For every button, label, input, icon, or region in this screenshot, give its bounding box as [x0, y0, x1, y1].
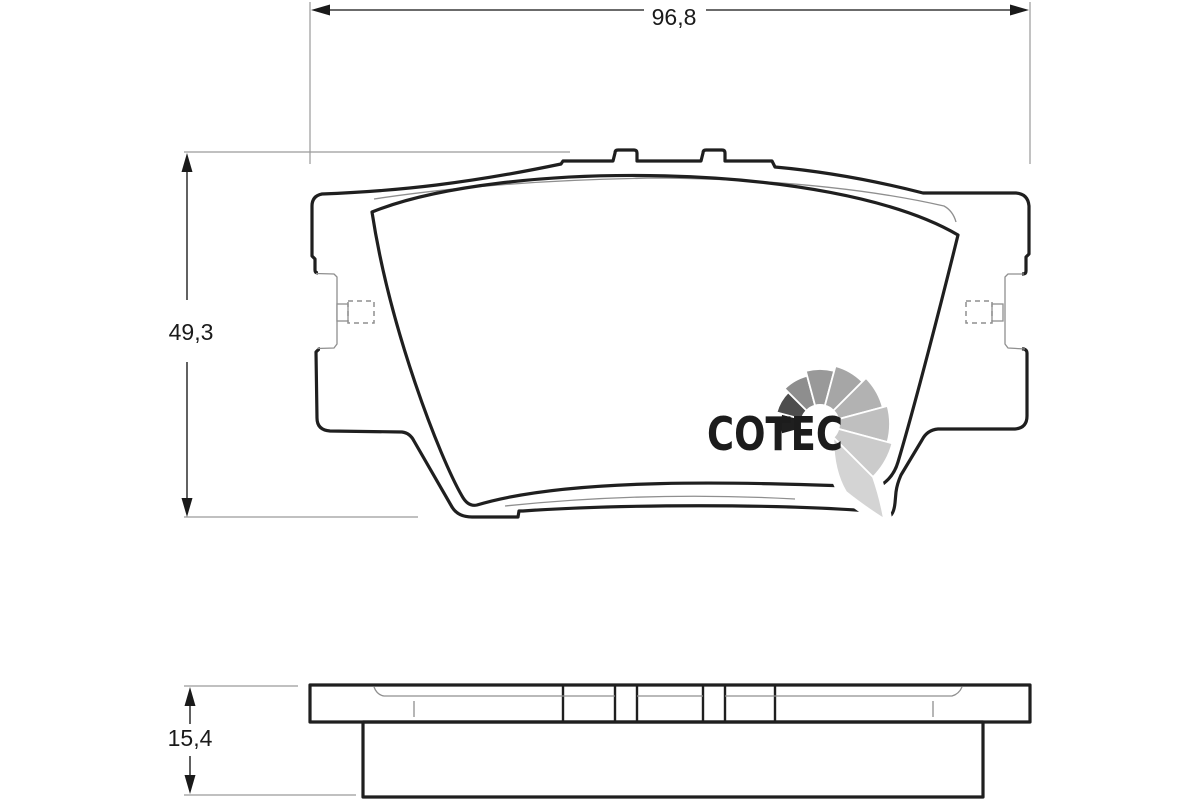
- arrow-left-icon: [311, 5, 330, 16]
- pad-top-view: [312, 150, 1029, 517]
- pad-side-view: [310, 685, 1030, 797]
- left-ear-tab: [337, 304, 348, 321]
- height-dimension-label: 49,3: [169, 319, 214, 345]
- friction-material-side-view: [363, 722, 983, 797]
- drawing-canvas: 96,8 49,3 COTEC: [0, 0, 1200, 800]
- arrow-down-icon: [185, 775, 196, 794]
- arrow-right-icon: [1010, 5, 1029, 16]
- width-dimension: 96,8: [310, 2, 1030, 164]
- left-recess-mask: [318, 274, 337, 348]
- arrow-up-icon: [182, 153, 193, 172]
- backing-plate-outline: [312, 150, 1029, 517]
- width-dimension-label: 96,8: [652, 4, 697, 30]
- right-ear-tab: [992, 304, 1003, 321]
- right-recess-mask: [1005, 274, 1022, 349]
- arrow-down-icon: [182, 498, 193, 517]
- left-recess-edge: [316, 274, 337, 349]
- arrow-up-icon: [185, 687, 196, 706]
- brake-pad-technical-drawing: 96,8 49,3 COTEC: [0, 0, 1200, 800]
- backing-plate-side: [310, 685, 1030, 722]
- logo-wordmark: COTEC: [707, 407, 843, 461]
- thickness-dimension-label: 15,4: [168, 725, 213, 751]
